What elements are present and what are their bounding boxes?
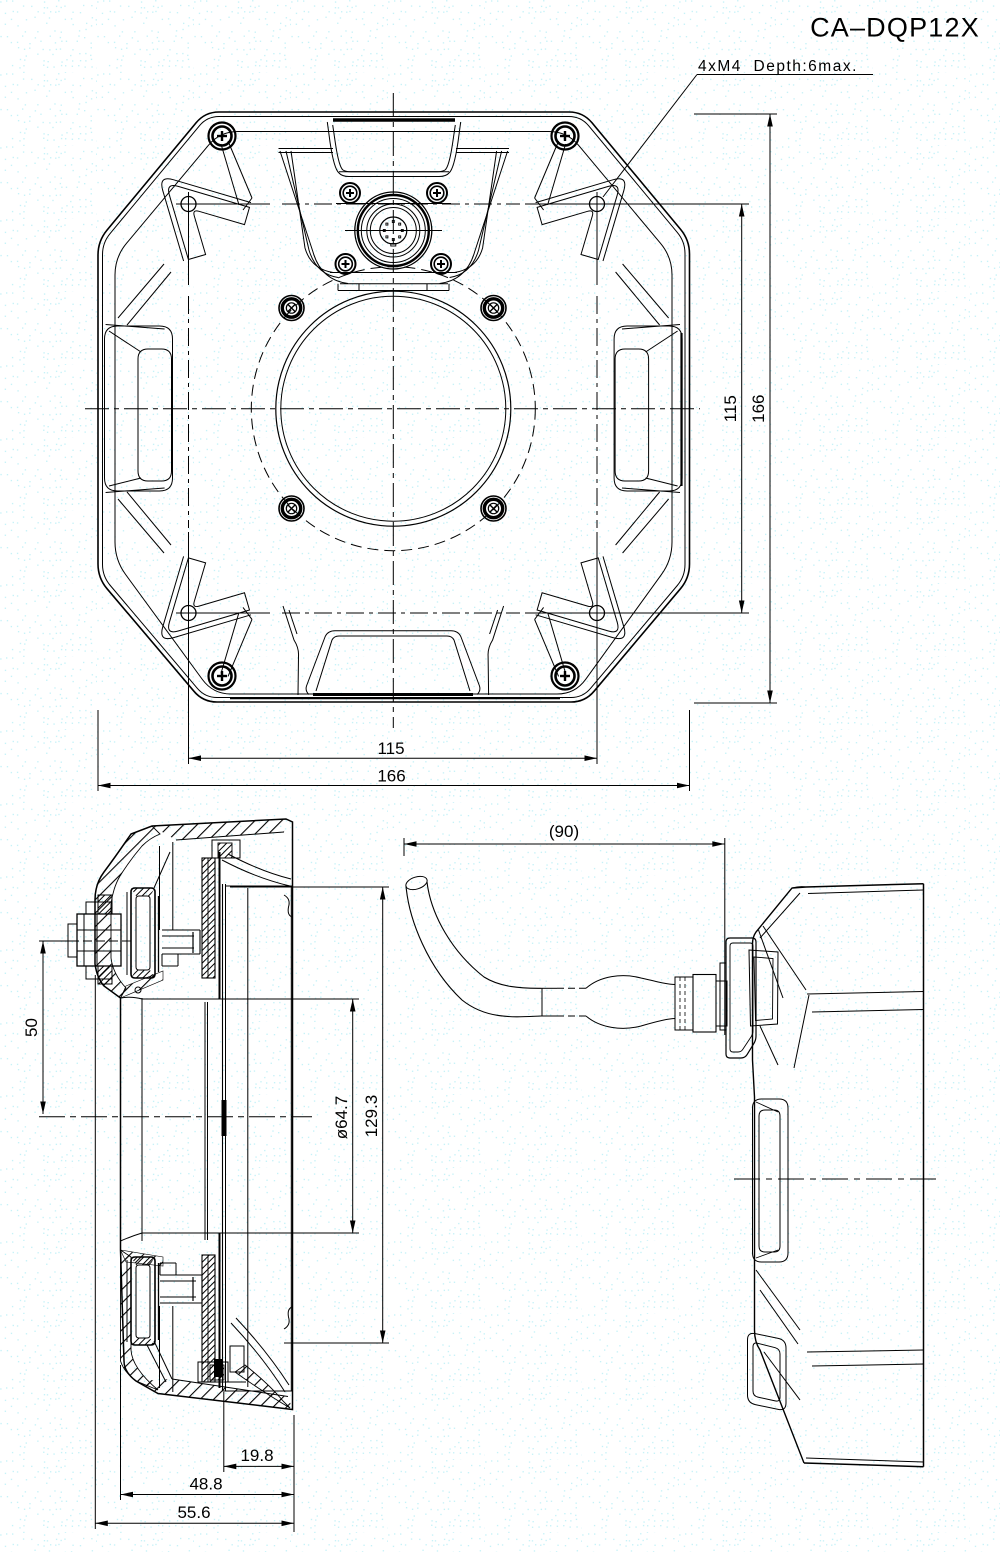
- svg-text:4xM4 Depth:6max.: 4xM4 Depth:6max.: [698, 58, 858, 75]
- svg-text:48.8: 48.8: [189, 1475, 222, 1494]
- svg-text:166: 166: [749, 395, 768, 423]
- svg-text:19.8: 19.8: [240, 1446, 273, 1465]
- svg-text:CA–DQP12X: CA–DQP12X: [810, 13, 980, 43]
- svg-text:55.6: 55.6: [177, 1503, 210, 1522]
- svg-text:166: 166: [377, 767, 405, 786]
- svg-text:115: 115: [377, 739, 404, 758]
- svg-text:50: 50: [22, 1018, 41, 1037]
- svg-text:129.3: 129.3: [362, 1095, 381, 1138]
- svg-text:ø64.7: ø64.7: [332, 1096, 351, 1139]
- svg-text:115: 115: [721, 395, 740, 422]
- svg-text:(90): (90): [549, 822, 579, 841]
